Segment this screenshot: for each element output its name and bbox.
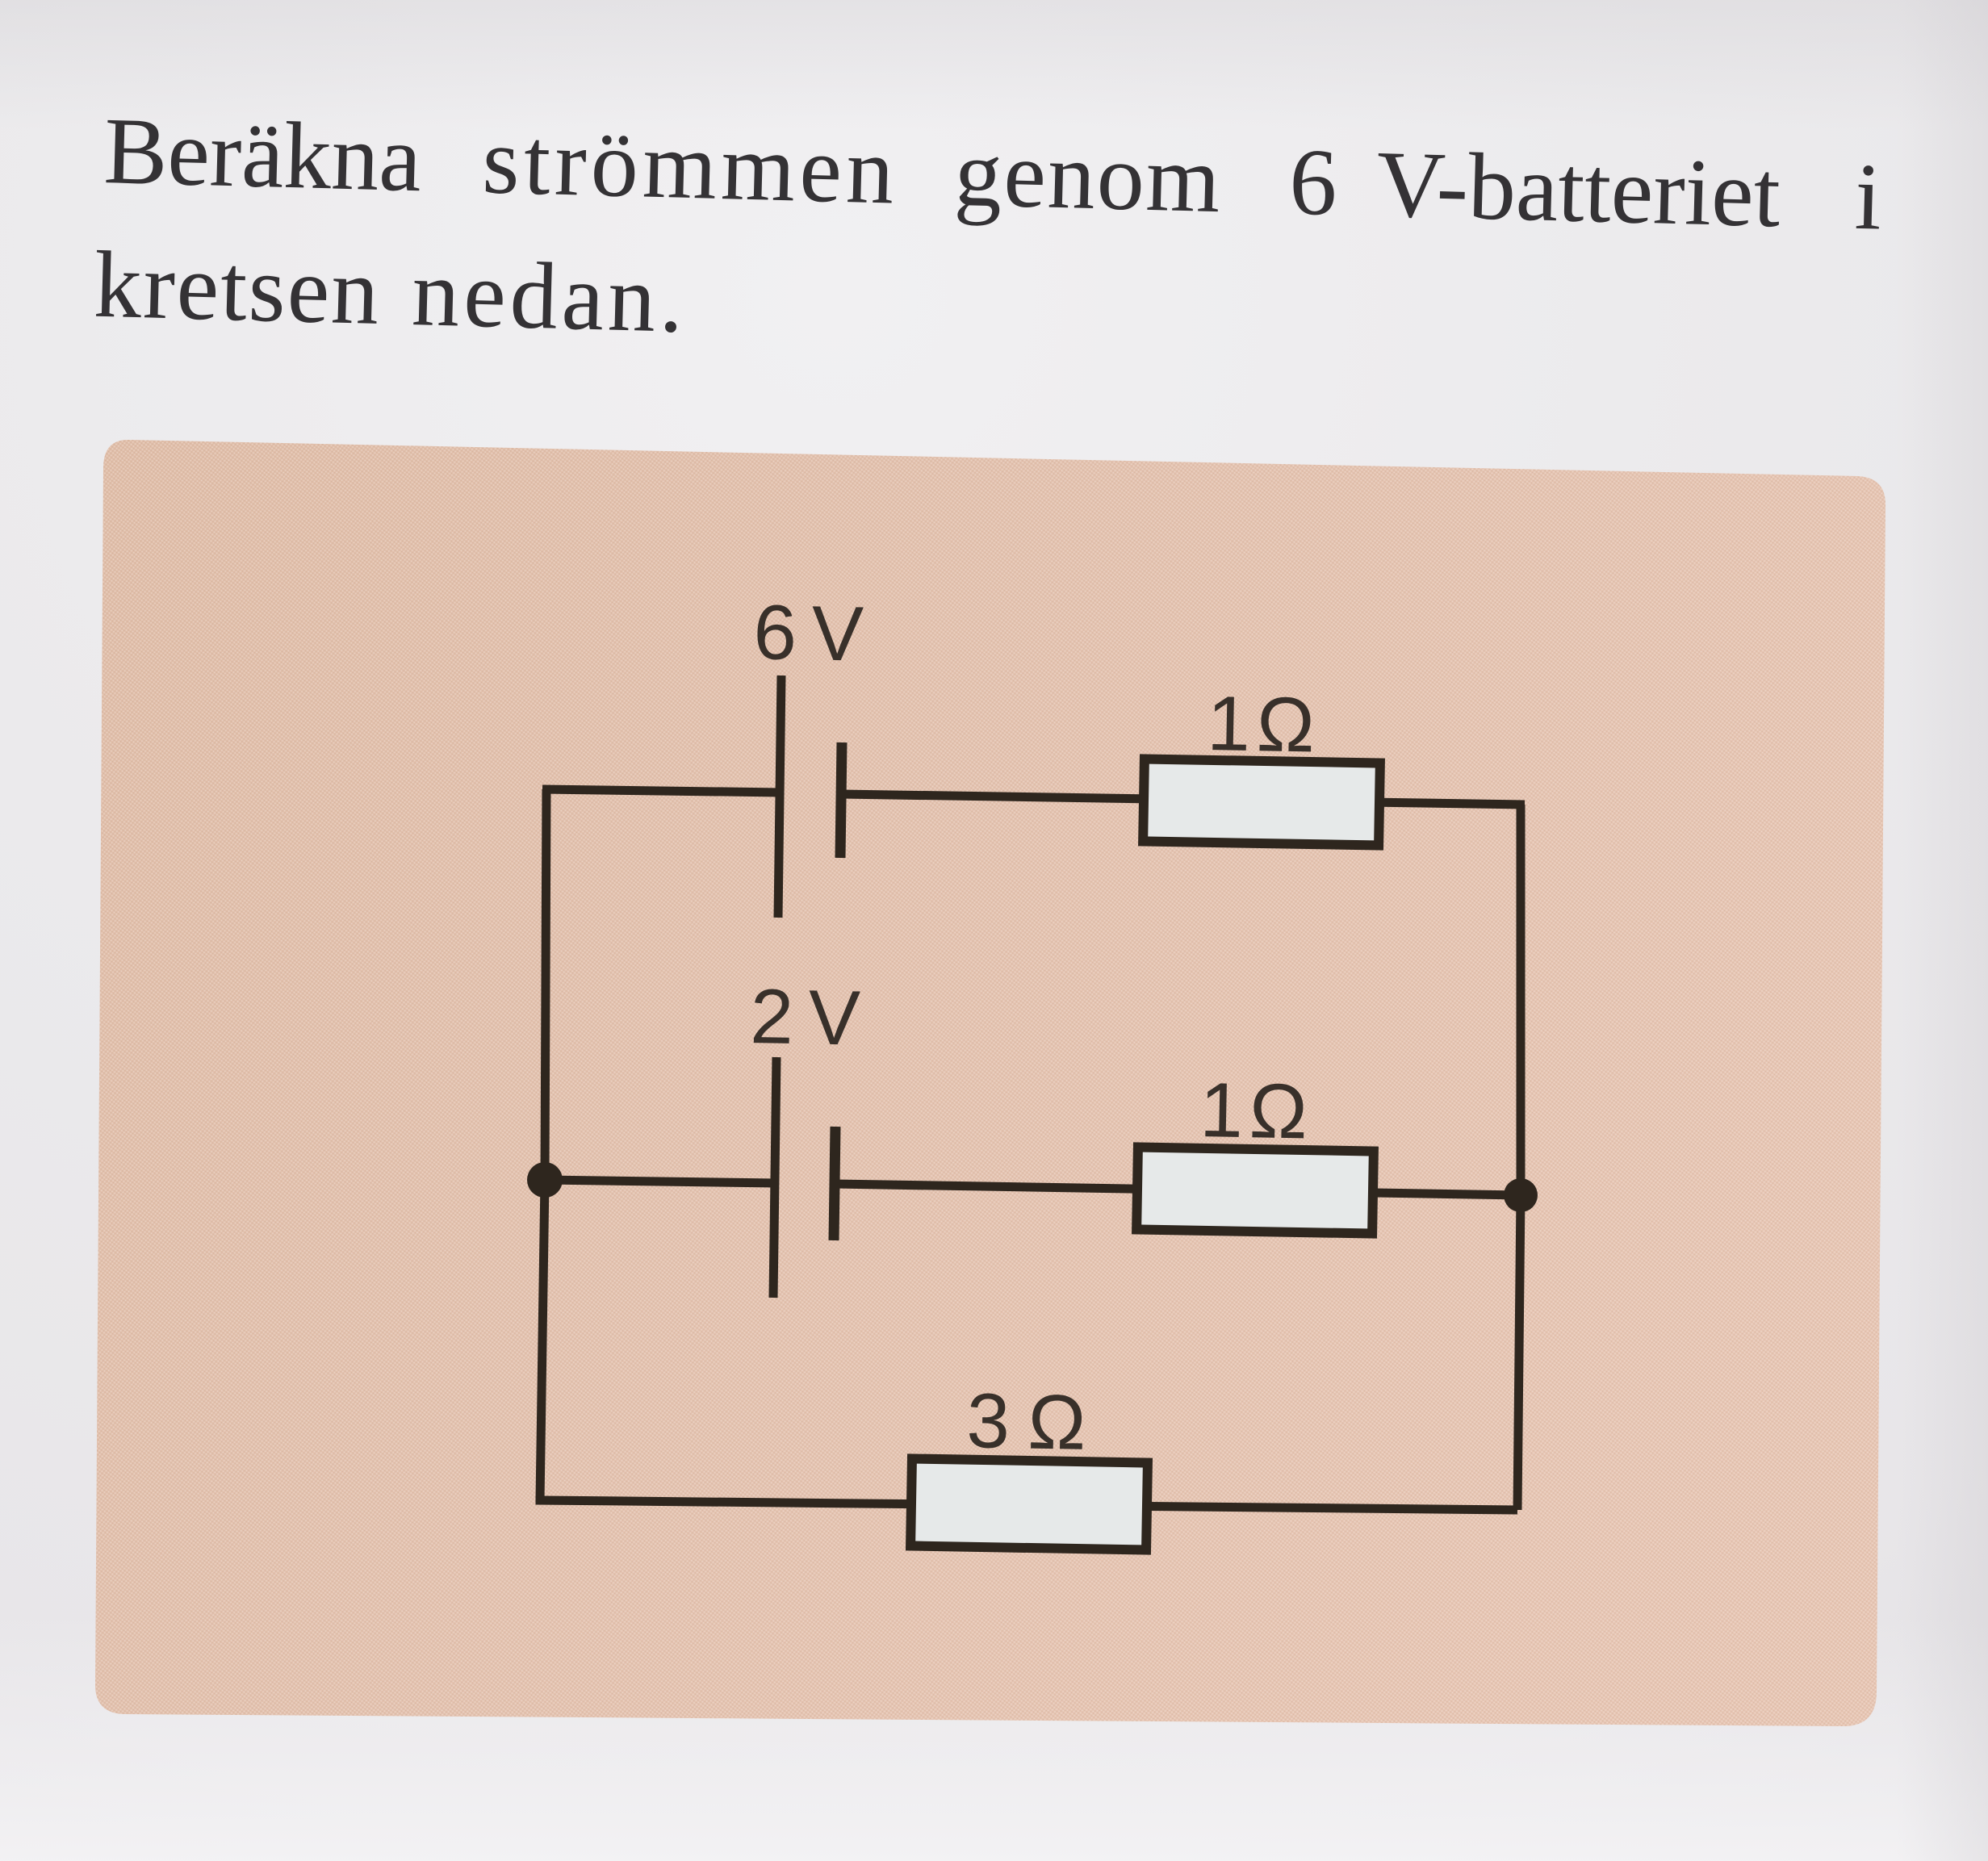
svg-text:1Ω: 1Ω xyxy=(1199,1067,1315,1156)
svg-text:6 V: 6 V xyxy=(753,589,864,678)
svg-text:1Ω: 1Ω xyxy=(1207,680,1322,769)
svg-text:2 V: 2 V xyxy=(750,973,861,1062)
svg-text:nedan.: nedan. xyxy=(411,240,689,353)
svg-text:Beräkna: Beräkna xyxy=(103,98,422,211)
svg-text:V-batteriet: V-batteriet xyxy=(1375,131,1782,247)
svg-text:6: 6 xyxy=(1288,128,1338,235)
svg-text:strömmen: strömmen xyxy=(481,107,899,224)
svg-text:3 Ω: 3 Ω xyxy=(966,1378,1086,1466)
svg-text:genom: genom xyxy=(953,120,1223,233)
svg-text:i: i xyxy=(1854,144,1883,250)
svg-text:kretsen: kretsen xyxy=(93,232,382,345)
